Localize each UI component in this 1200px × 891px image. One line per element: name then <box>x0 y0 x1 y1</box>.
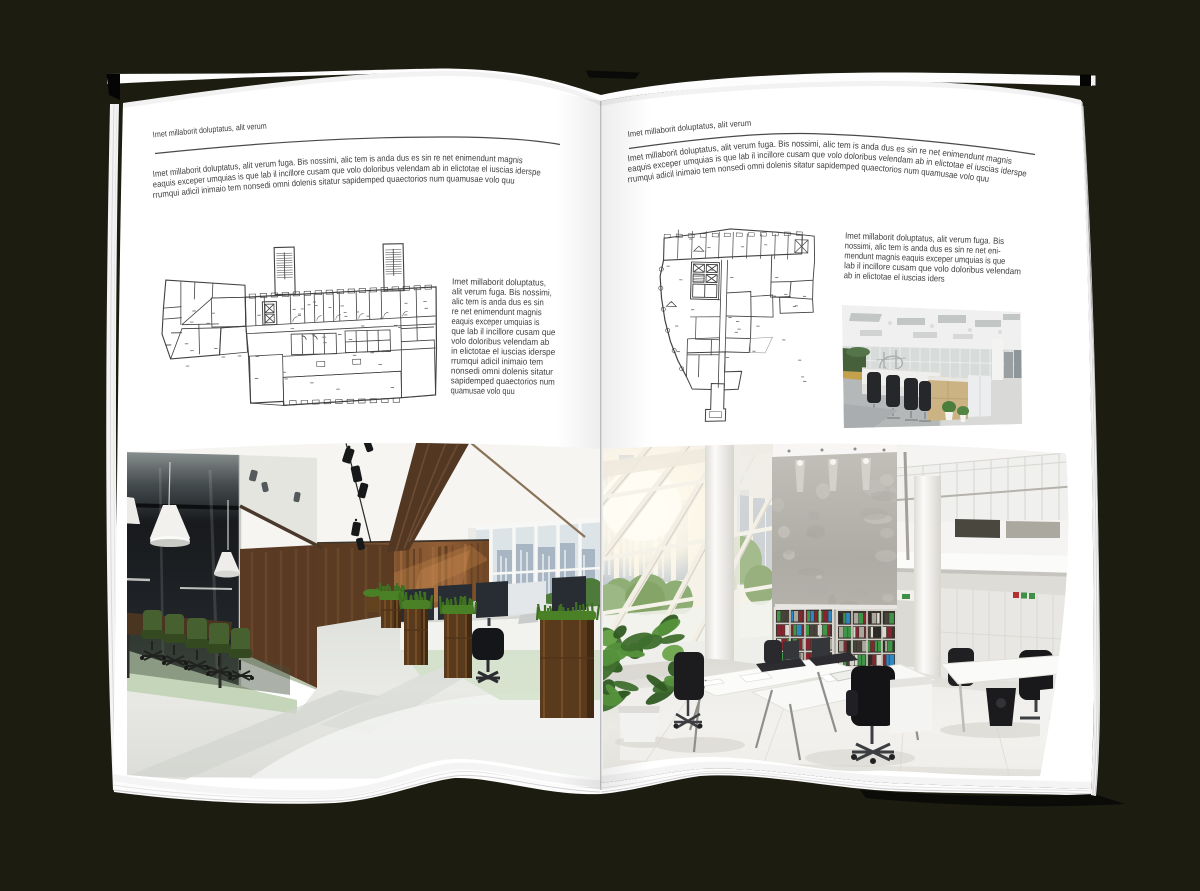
svg-text:quamusae volo quu: quamusae volo quu <box>451 385 515 396</box>
